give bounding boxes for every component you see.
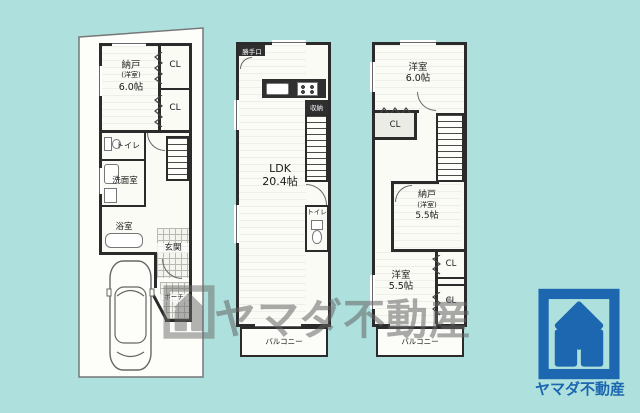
bedroom-top-label: 洋室 6.0帖 — [388, 62, 448, 84]
brand-block: ヤマダ不動産 — [520, 280, 640, 410]
window — [370, 275, 375, 309]
window — [370, 62, 375, 92]
balcony-label-3f: バルコニー — [401, 338, 438, 347]
bedroom-bottom-label: 洋室 5.5帖 — [372, 270, 430, 292]
yamada-logo-icon — [538, 288, 620, 380]
brand-name: ヤマダ不動産 — [528, 378, 632, 399]
closet2-label-3f: CL — [438, 259, 464, 269]
balcony-3f: バルコニー — [376, 327, 464, 357]
stairs-3f — [436, 113, 464, 182]
closet3-label-3f: CL — [438, 296, 464, 306]
window — [400, 40, 436, 45]
floorplan-image: 納戸 (洋室) 6.0帖 CL CL トイレ 洗面室 浴室 — [0, 0, 640, 413]
closet1-label-3f: CL — [375, 120, 415, 130]
storage-room-label-3f: 納戸 (洋室) 5.5帖 — [400, 190, 454, 221]
